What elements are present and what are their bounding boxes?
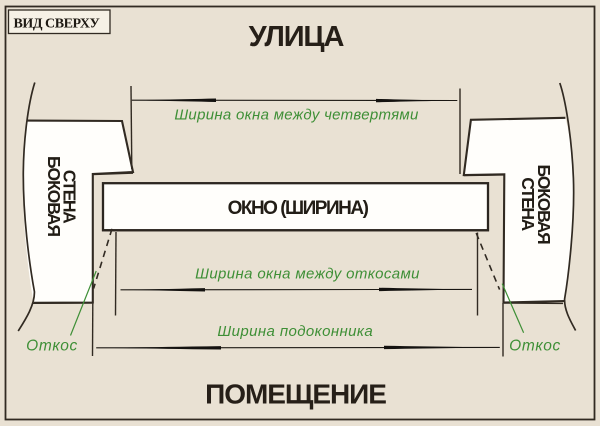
svg-text:Ширина окна между четвертями: Ширина окна между четвертями xyxy=(174,106,419,123)
svg-text:Откос: Откос xyxy=(509,338,561,355)
svg-text:ПОМЕЩЕНИЕ: ПОМЕЩЕНИЕ xyxy=(205,379,386,410)
svg-text:СТЕНА: СТЕНА xyxy=(60,170,80,224)
svg-text:ВИД СВЕРХУ: ВИД СВЕРХУ xyxy=(14,17,100,32)
svg-text:Ширина окна между откосами: Ширина окна между откосами xyxy=(195,266,420,283)
svg-text:СТЕНА: СТЕНА xyxy=(518,177,538,231)
svg-text:Откос: Откос xyxy=(26,338,78,355)
svg-text:ОКНО (ШИРИНА): ОКНО (ШИРИНА) xyxy=(228,198,369,219)
svg-text:Ширина подоконника: Ширина подоконника xyxy=(217,323,373,340)
svg-text:УЛИЦА: УЛИЦА xyxy=(249,21,345,53)
